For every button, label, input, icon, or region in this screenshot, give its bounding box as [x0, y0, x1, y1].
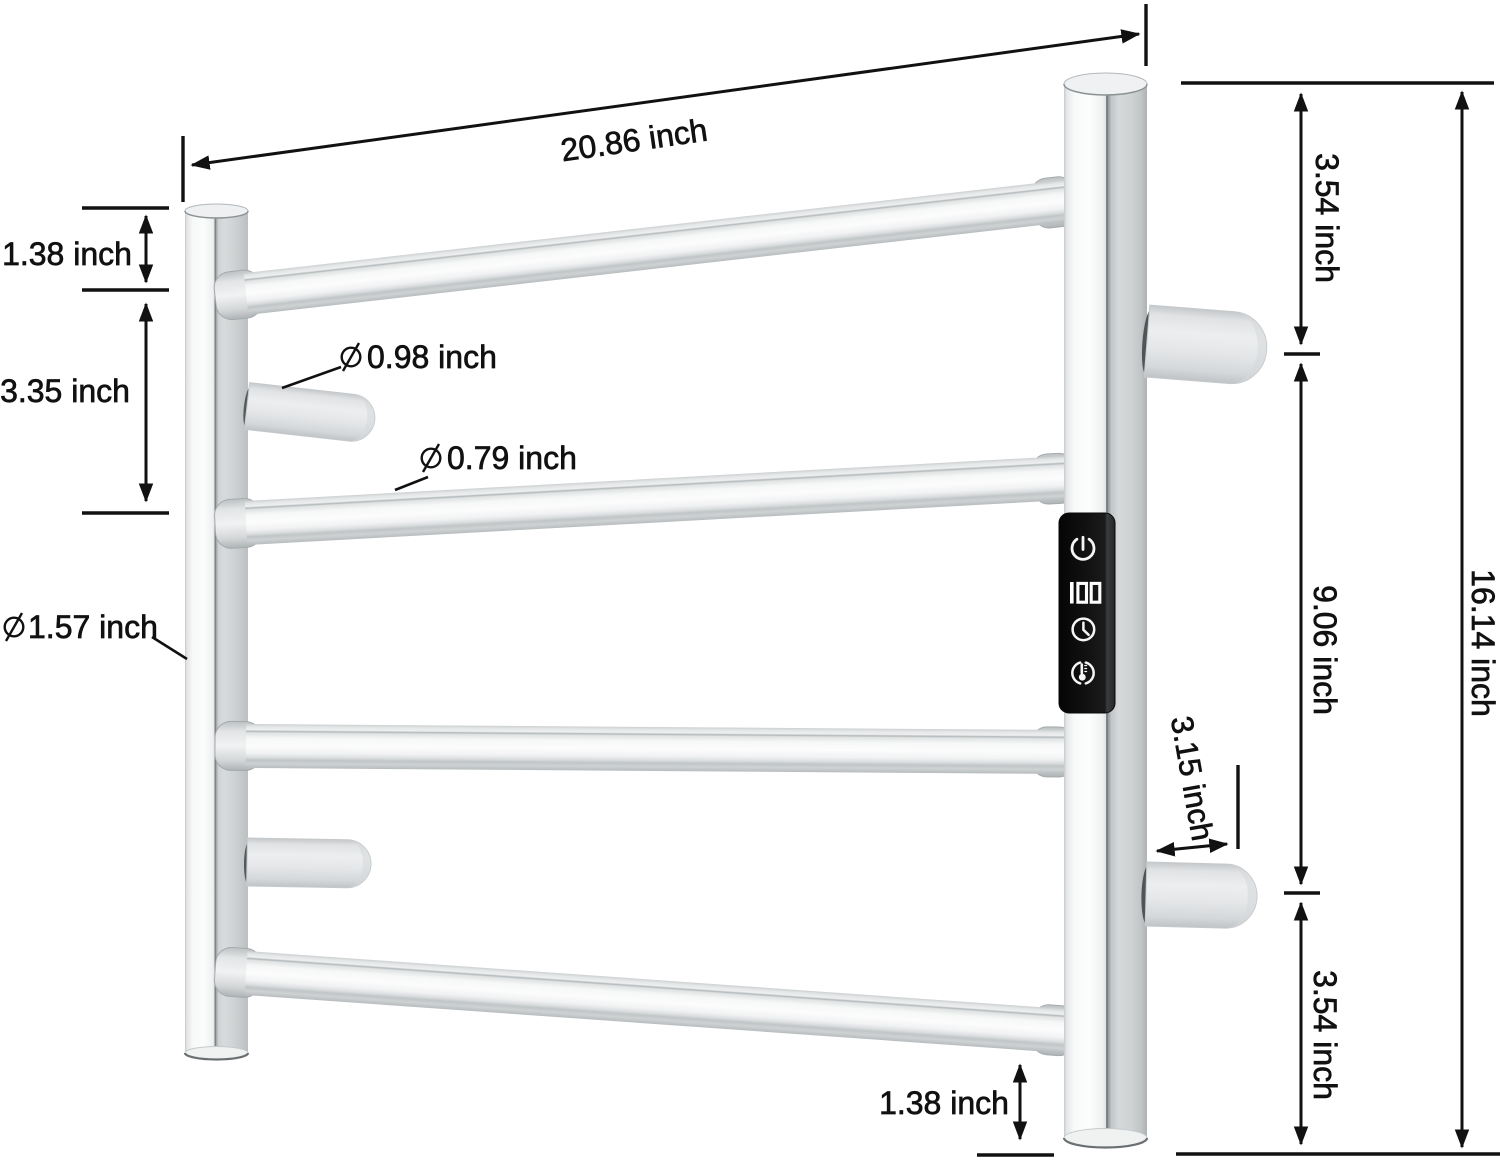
svg-text:16.14 inch: 16.14 inch — [1465, 569, 1500, 717]
svg-text:3.35 inch: 3.35 inch — [0, 373, 130, 409]
svg-text:1.57 inch: 1.57 inch — [28, 609, 158, 645]
svg-text:3.15 inch: 3.15 inch — [1164, 713, 1220, 843]
svg-text:1.38 inch: 1.38 inch — [2, 236, 132, 272]
svg-text:0.79 inch: 0.79 inch — [447, 440, 577, 476]
svg-text:20.86 inch: 20.86 inch — [558, 112, 709, 169]
svg-text:0.98 inch: 0.98 inch — [367, 339, 497, 375]
svg-text:9.06 inch: 9.06 inch — [1307, 585, 1343, 715]
svg-text:1.38 inch: 1.38 inch — [879, 1085, 1009, 1121]
svg-text:3.54 inch: 3.54 inch — [1307, 970, 1343, 1100]
svg-text:3.54 inch: 3.54 inch — [1309, 153, 1345, 283]
